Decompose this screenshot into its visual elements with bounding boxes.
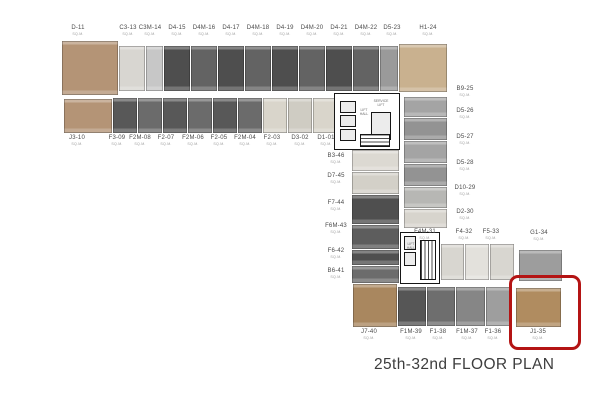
- unit-id-text: F2-05: [211, 135, 228, 142]
- unit-area-text: SQ.M.: [276, 32, 293, 36]
- unit-area-text: SQ.M.: [129, 142, 151, 146]
- unit-area-text: SQ.M.: [158, 142, 175, 146]
- unit-label-F2M-08: F2M-08SQ.M.: [129, 135, 151, 146]
- unit-J3-10: [64, 99, 112, 133]
- unit-D7-45: [352, 172, 399, 194]
- unit-id-text: D4-19: [276, 25, 293, 32]
- unit-id-text: D10-29: [455, 185, 476, 192]
- unit-id-text: D4M-18: [247, 25, 270, 32]
- unit-D5-23: [380, 46, 398, 91]
- unit-area-text: SQ.M.: [430, 336, 447, 340]
- unit-id-text: D4-17: [222, 25, 239, 32]
- unit-id-text: B9-25: [456, 86, 473, 93]
- unit-D4-15: [164, 46, 190, 91]
- unit-label-F2M-06: F2M-06SQ.M.: [182, 135, 204, 146]
- unit-C3-13: [119, 46, 145, 91]
- unit-area-text: SQ.M.: [456, 216, 473, 220]
- highlight-box: [509, 275, 581, 350]
- unit-id-text: F1-38: [430, 329, 447, 336]
- unit-area-text: SQ.M.: [456, 336, 478, 340]
- unit-F7-44: [352, 195, 399, 224]
- unit-id-text: F6M-43: [325, 223, 347, 230]
- unit-area-text: SQ.M.: [119, 32, 136, 36]
- unit-label-D1-01: D1-01SQ.M.: [317, 135, 334, 146]
- unit-label-F5-33: F5-33SQ.M.: [483, 229, 500, 240]
- lift-1-icon: [340, 101, 356, 113]
- lift-hall-2-label: LIFT HALL: [404, 242, 418, 251]
- unit-label-F1-36: F1-36SQ.M.: [485, 329, 502, 340]
- unit-label-J7-40: J7-40SQ.M.: [361, 329, 377, 340]
- unit-F1-38: [427, 287, 455, 326]
- unit-D4M-18: [245, 46, 271, 91]
- unit-area-text: SQ.M.: [327, 160, 344, 164]
- unit-area-text: SQ.M.: [330, 32, 347, 36]
- unit-id-text: C3-13: [119, 25, 136, 32]
- unit-label-D5-28: D5-28SQ.M.: [456, 160, 473, 171]
- unit-label-D2-30: D2-30SQ.M.: [456, 209, 473, 220]
- unit-label-H1-24: H1-24SQ.M.: [419, 25, 436, 36]
- unit-J7-40: [353, 284, 397, 327]
- service-lift-label: SERVICE LIFT: [371, 99, 391, 108]
- unit-area-text: SQ.M.: [355, 32, 378, 36]
- unit-D5-28: [404, 164, 447, 186]
- unit-F1M-37: [456, 287, 485, 326]
- unit-area-text: SQ.M.: [456, 167, 473, 171]
- unit-area-text: SQ.M.: [456, 236, 473, 240]
- unit-area-text: SQ.M.: [456, 141, 473, 145]
- unit-H1-24: [399, 44, 447, 92]
- floor-plan: 25th-32nd FLOOR PLAN LIFT HALLSERVICE LI…: [0, 0, 600, 400]
- unit-label-D4M-16: D4M-16SQ.M.: [193, 25, 216, 36]
- unit-id-text: F7-44: [328, 200, 345, 207]
- unit-id-text: D5-27: [456, 134, 473, 141]
- unit-area-text: SQ.M.: [71, 32, 84, 36]
- floor-plan-title: 25th-32nd FLOOR PLAN: [374, 356, 554, 374]
- unit-id-text: F2M-04: [234, 135, 256, 142]
- unit-label-D-11: D-11SQ.M.: [71, 25, 84, 36]
- unit-label-D5-23: D5-23SQ.M.: [383, 25, 400, 36]
- unit-area-text: SQ.M.: [400, 336, 422, 340]
- unit-label-C3-13: C3-13SQ.M.: [119, 25, 136, 36]
- unit-area-text: SQ.M.: [327, 275, 344, 279]
- unit-area-text: SQ.M.: [264, 142, 281, 146]
- unit-label-F4-32: F4-32SQ.M.: [456, 229, 473, 240]
- unit-id-text: F2-07: [158, 135, 175, 142]
- unit-label-F2M-04: F2M-04SQ.M.: [234, 135, 256, 146]
- unit-D5-26: [404, 118, 447, 140]
- unit-B6-41: [352, 266, 399, 283]
- unit-label-F1M-39: F1M-39SQ.M.: [400, 329, 422, 340]
- unit-id-text: F4M-31: [414, 229, 436, 236]
- unit-area-text: SQ.M.: [109, 142, 126, 146]
- unit-id-text: D1-01: [317, 135, 334, 142]
- unit-id-text: D4-21: [330, 25, 347, 32]
- unit-id-text: F6-42: [328, 248, 345, 255]
- unit-F6-42: [352, 250, 399, 265]
- unit-area-text: SQ.M.: [291, 142, 308, 146]
- unit-label-D4-21: D4-21SQ.M.: [330, 25, 347, 36]
- unit-label-D5-27: D5-27SQ.M.: [456, 134, 473, 145]
- unit-id-text: D5-26: [456, 108, 473, 115]
- unit-area-text: SQ.M.: [328, 255, 345, 259]
- unit-label-D5-26: D5-26SQ.M.: [456, 108, 473, 119]
- unit-id-text: D4M-16: [193, 25, 216, 32]
- unit-label-F2-07: F2-07SQ.M.: [158, 135, 175, 146]
- unit-area-text: SQ.M.: [485, 336, 502, 340]
- unit-label-F1M-37: F1M-37SQ.M.: [456, 329, 478, 340]
- unit-id-text: F2-03: [264, 135, 281, 142]
- unit-label-B3-46: B3-46SQ.M.: [327, 153, 344, 164]
- unit-F6M-43: [352, 225, 399, 249]
- unit-area-text: SQ.M.: [139, 32, 162, 36]
- unit-label-D4-15: D4-15SQ.M.: [168, 25, 185, 36]
- unit-area-text: SQ.M.: [247, 32, 270, 36]
- unit-label-F2-05: F2-05SQ.M.: [211, 135, 228, 146]
- unit-id-text: F1-36: [485, 329, 502, 336]
- unit-label-F6-42: F6-42SQ.M.: [328, 248, 345, 259]
- stair-1-icon: [360, 134, 390, 147]
- unit-F4-32: [465, 244, 489, 280]
- unit-id-text: D2-30: [456, 209, 473, 216]
- unit-id-text: F2M-06: [182, 135, 204, 142]
- unit-label-D3-02: D3-02SQ.M.: [291, 135, 308, 146]
- unit-id-text: B6-41: [327, 268, 344, 275]
- unit-area-text: SQ.M.: [325, 230, 347, 234]
- unit-label-D7-45: D7-45SQ.M.: [327, 173, 344, 184]
- unit-area-text: SQ.M.: [234, 142, 256, 146]
- unit-label-B6-41: B6-41SQ.M.: [327, 268, 344, 279]
- unit-id-text: D4-15: [168, 25, 185, 32]
- unit-id-text: D4M-22: [355, 25, 378, 32]
- unit-F2M-04: [238, 98, 262, 133]
- unit-label-F3-09: F3-09SQ.M.: [109, 135, 126, 146]
- unit-id-text: F1M-37: [456, 329, 478, 336]
- unit-D3-02: [288, 98, 312, 133]
- unit-F2-03: [263, 98, 287, 133]
- unit-D4M-22: [353, 46, 379, 91]
- unit-label-D10-29: D10-29SQ.M.: [455, 185, 476, 196]
- unit-D5-27: [404, 141, 447, 163]
- unit-id-text: C3M-14: [139, 25, 162, 32]
- unit-area-text: SQ.M.: [456, 93, 473, 97]
- unit-D-11: [62, 41, 118, 95]
- unit-F4M-31: [441, 244, 464, 280]
- unit-area-text: SQ.M.: [361, 336, 377, 340]
- unit-B9-25: [404, 97, 447, 117]
- unit-area-text: SQ.M.: [301, 32, 324, 36]
- unit-id-text: F1M-39: [400, 329, 422, 336]
- unit-label-F7-44: F7-44SQ.M.: [328, 200, 345, 211]
- stair-2-icon: [420, 240, 436, 280]
- unit-label-D4-17: D4-17SQ.M.: [222, 25, 239, 36]
- unit-area-text: SQ.M.: [419, 32, 436, 36]
- unit-id-text: F2M-08: [129, 135, 151, 142]
- unit-id-text: D5-28: [456, 160, 473, 167]
- unit-area-text: SQ.M.: [168, 32, 185, 36]
- unit-F3-09: [113, 98, 137, 133]
- unit-area-text: SQ.M.: [483, 236, 500, 240]
- unit-area-text: SQ.M.: [530, 237, 548, 241]
- unit-id-text: D5-23: [383, 25, 400, 32]
- lift-hall-1-label: LIFT HALL: [357, 108, 371, 117]
- unit-label-J3-10: J3-10SQ.M.: [69, 135, 85, 146]
- unit-D10-29: [404, 187, 447, 208]
- unit-label-G1-34: G1-34SQ.M.: [530, 230, 548, 241]
- unit-D4-17: [218, 46, 244, 91]
- unit-area-text: SQ.M.: [414, 236, 436, 240]
- unit-area-text: SQ.M.: [182, 142, 204, 146]
- unit-label-F2-03: F2-03SQ.M.: [264, 135, 281, 146]
- unit-id-text: F3-09: [109, 135, 126, 142]
- unit-id-text: J3-10: [69, 135, 85, 142]
- unit-area-text: SQ.M.: [222, 32, 239, 36]
- unit-id-text: D7-45: [327, 173, 344, 180]
- unit-id-text: J7-40: [361, 329, 377, 336]
- unit-B3-46: [352, 150, 399, 171]
- unit-F2M-08: [138, 98, 162, 133]
- unit-label-F1-38: F1-38SQ.M.: [430, 329, 447, 340]
- lift-2-icon: [340, 115, 356, 127]
- unit-label-F6M-43: F6M-43SQ.M.: [325, 223, 347, 234]
- unit-C3M-14: [146, 46, 163, 91]
- unit-area-text: SQ.M.: [328, 207, 345, 211]
- unit-F5-33: [490, 244, 514, 280]
- unit-area-text: SQ.M.: [317, 142, 334, 146]
- unit-area-text: SQ.M.: [455, 192, 476, 196]
- unit-D4-21: [326, 46, 352, 91]
- unit-label-D4-19: D4-19SQ.M.: [276, 25, 293, 36]
- unit-id-text: F4-32: [456, 229, 473, 236]
- unit-F2-05: [213, 98, 237, 133]
- unit-label-D4M-20: D4M-20SQ.M.: [301, 25, 324, 36]
- unit-D4M-20: [299, 46, 325, 91]
- unit-area-text: SQ.M.: [211, 142, 228, 146]
- unit-area-text: SQ.M.: [193, 32, 216, 36]
- unit-D4M-16: [191, 46, 217, 91]
- unit-area-text: SQ.M.: [456, 115, 473, 119]
- unit-D2-30: [404, 209, 447, 228]
- unit-F1M-39: [398, 287, 426, 326]
- unit-id-text: G1-34: [530, 230, 548, 237]
- unit-area-text: SQ.M.: [327, 180, 344, 184]
- unit-id-text: H1-24: [419, 25, 436, 32]
- lift-3-icon: [340, 129, 356, 141]
- unit-F2M-06: [188, 98, 212, 133]
- unit-id-text: D3-02: [291, 135, 308, 142]
- unit-area-text: SQ.M.: [69, 142, 85, 146]
- unit-F2-07: [163, 98, 187, 133]
- unit-area-text: SQ.M.: [383, 32, 400, 36]
- unit-id-text: D-11: [71, 25, 84, 32]
- unit-label-F4M-31: F4M-31SQ.M.: [414, 229, 436, 240]
- unit-label-B9-25: B9-25SQ.M.: [456, 86, 473, 97]
- unit-id-text: D4M-20: [301, 25, 324, 32]
- unit-D4-19: [272, 46, 298, 91]
- unit-id-text: B3-46: [327, 153, 344, 160]
- unit-id-text: F5-33: [483, 229, 500, 236]
- lift-5-icon: [404, 252, 416, 266]
- unit-label-C3M-14: C3M-14SQ.M.: [139, 25, 162, 36]
- unit-label-D4M-22: D4M-22SQ.M.: [355, 25, 378, 36]
- unit-label-D4M-18: D4M-18SQ.M.: [247, 25, 270, 36]
